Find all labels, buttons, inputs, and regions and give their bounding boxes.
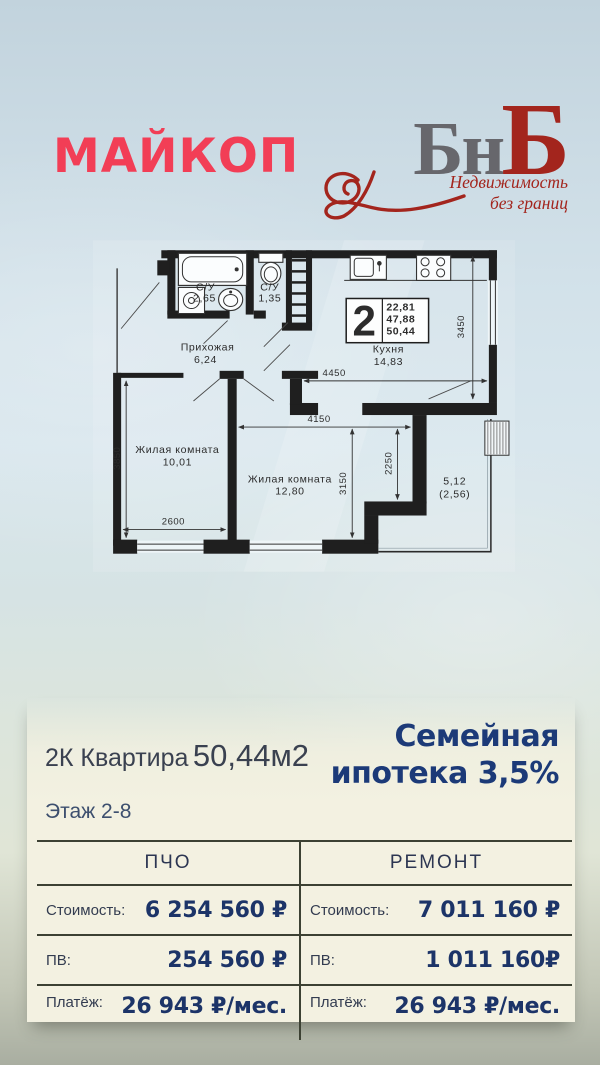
kitchen-sink-icon [350, 255, 386, 279]
unit-area-line2: 47,88 [386, 314, 415, 326]
price-column-pcho: ПЧО Стоимость: 6 254 560 ₽ ПВ: 254 560 ₽… [37, 842, 299, 1040]
row-value-cost: 7 011 160 ₽ [418, 898, 560, 923]
stove-icon [417, 255, 451, 280]
apartment-area: 50,44м2 [193, 738, 309, 773]
bathroom-sink-icon [219, 288, 243, 310]
room-area-balcony: 5,12 [443, 475, 466, 487]
room-label-living1: Жилая комната [135, 444, 219, 456]
room-area-kitchen: 14,83 [374, 356, 403, 368]
row-label-cost: Стоимость: [46, 902, 125, 919]
mortgage-promo: Семейная ипотека 3,5% [331, 718, 559, 792]
room-label-kitchen: Кухня [373, 344, 404, 356]
row-label-payment: Платёж: [46, 994, 103, 1011]
table-row: Стоимость: 7 011 160 ₽ [301, 886, 572, 936]
table-row: ПВ: 1 011 160₽ [301, 936, 572, 986]
dim-living2-width: 4150 [307, 414, 330, 425]
row-value-payment: 26 943 ₽/мес. [394, 994, 560, 1019]
unit-badge: 2 22,81 47,88 50,44 [346, 298, 428, 345]
column-header-remont: РЕМОНТ [301, 842, 572, 886]
dim-living1-height: 3850 [112, 447, 123, 470]
column-header-pcho: ПЧО [37, 842, 299, 886]
apartment-type: 2К Квартира [45, 744, 188, 772]
room-area-living2: 12,80 [275, 485, 304, 497]
room-area-bath-main: 2,65 [193, 293, 216, 305]
city-title: МАЙКОП [53, 129, 299, 184]
agency-logo: Бн Б Недвижимость без границ [330, 88, 570, 214]
price-table: ПЧО Стоимость: 6 254 560 ₽ ПВ: 254 560 ₽… [37, 840, 572, 1040]
row-value-downpayment: 254 560 ₽ [167, 948, 287, 973]
flyer: МАЙКОП Бн Б Недвижимость без границ [0, 0, 600, 1065]
ac-unit-icon [485, 421, 509, 455]
room-area-living1: 10,01 [163, 456, 192, 468]
dim-kitchen-width: 4450 [323, 368, 346, 379]
table-row: ПВ: 254 560 ₽ [37, 936, 299, 986]
row-label-downpayment: ПВ: [310, 952, 335, 969]
offer-panel: 2К Квартира 50,44м2 Семейная ипотека 3,5… [27, 698, 575, 1022]
room-area-balcony-coeff: (2,56) [439, 488, 470, 500]
dim-kitchen-height: 3450 [456, 315, 467, 338]
mortgage-promo-line1: Семейная [331, 718, 559, 755]
floors-range: Этаж 2-8 [45, 800, 131, 824]
apartment-title: 2К Квартира 50,44м2 [45, 738, 309, 774]
floor-plan: 2 22,81 47,88 50,44 С/У 2,65 С/У 1,35 Пр… [93, 240, 515, 572]
table-row: Стоимость: 6 254 560 ₽ [37, 886, 299, 936]
unit-area-line3: 50,44 [386, 326, 415, 338]
row-label-downpayment: ПВ: [46, 952, 71, 969]
price-column-remont: РЕМОНТ Стоимость: 7 011 160 ₽ ПВ: 1 011 … [299, 842, 572, 1040]
unit-number: 2 [353, 298, 376, 345]
room-label-hallway: Прихожая [181, 342, 235, 354]
toilet-icon [259, 253, 283, 284]
dim-living1-width: 2600 [162, 517, 185, 528]
row-label-cost: Стоимость: [310, 902, 389, 919]
room-label-living2: Жилая комната [248, 473, 332, 485]
unit-area-line1: 22,81 [386, 302, 415, 314]
row-value-payment: 26 943 ₽/мес. [121, 994, 287, 1019]
table-row: Платёж: 26 943 ₽/мес. [37, 986, 299, 1040]
dim-niche-height: 2250 [383, 452, 394, 475]
mortgage-promo-line2: ипотека 3,5% [331, 755, 559, 792]
room-area-hallway: 6,24 [194, 354, 217, 366]
room-area-bath-small: 1,35 [258, 293, 281, 305]
dim-living2-height: 3150 [338, 472, 349, 495]
row-value-downpayment: 1 011 160₽ [425, 948, 560, 973]
row-value-cost: 6 254 560 ₽ [145, 898, 287, 923]
table-row: Платёж: 26 943 ₽/мес. [301, 986, 572, 1040]
logo-swirl-flourish-icon [318, 164, 468, 226]
row-label-payment: Платёж: [310, 994, 367, 1011]
